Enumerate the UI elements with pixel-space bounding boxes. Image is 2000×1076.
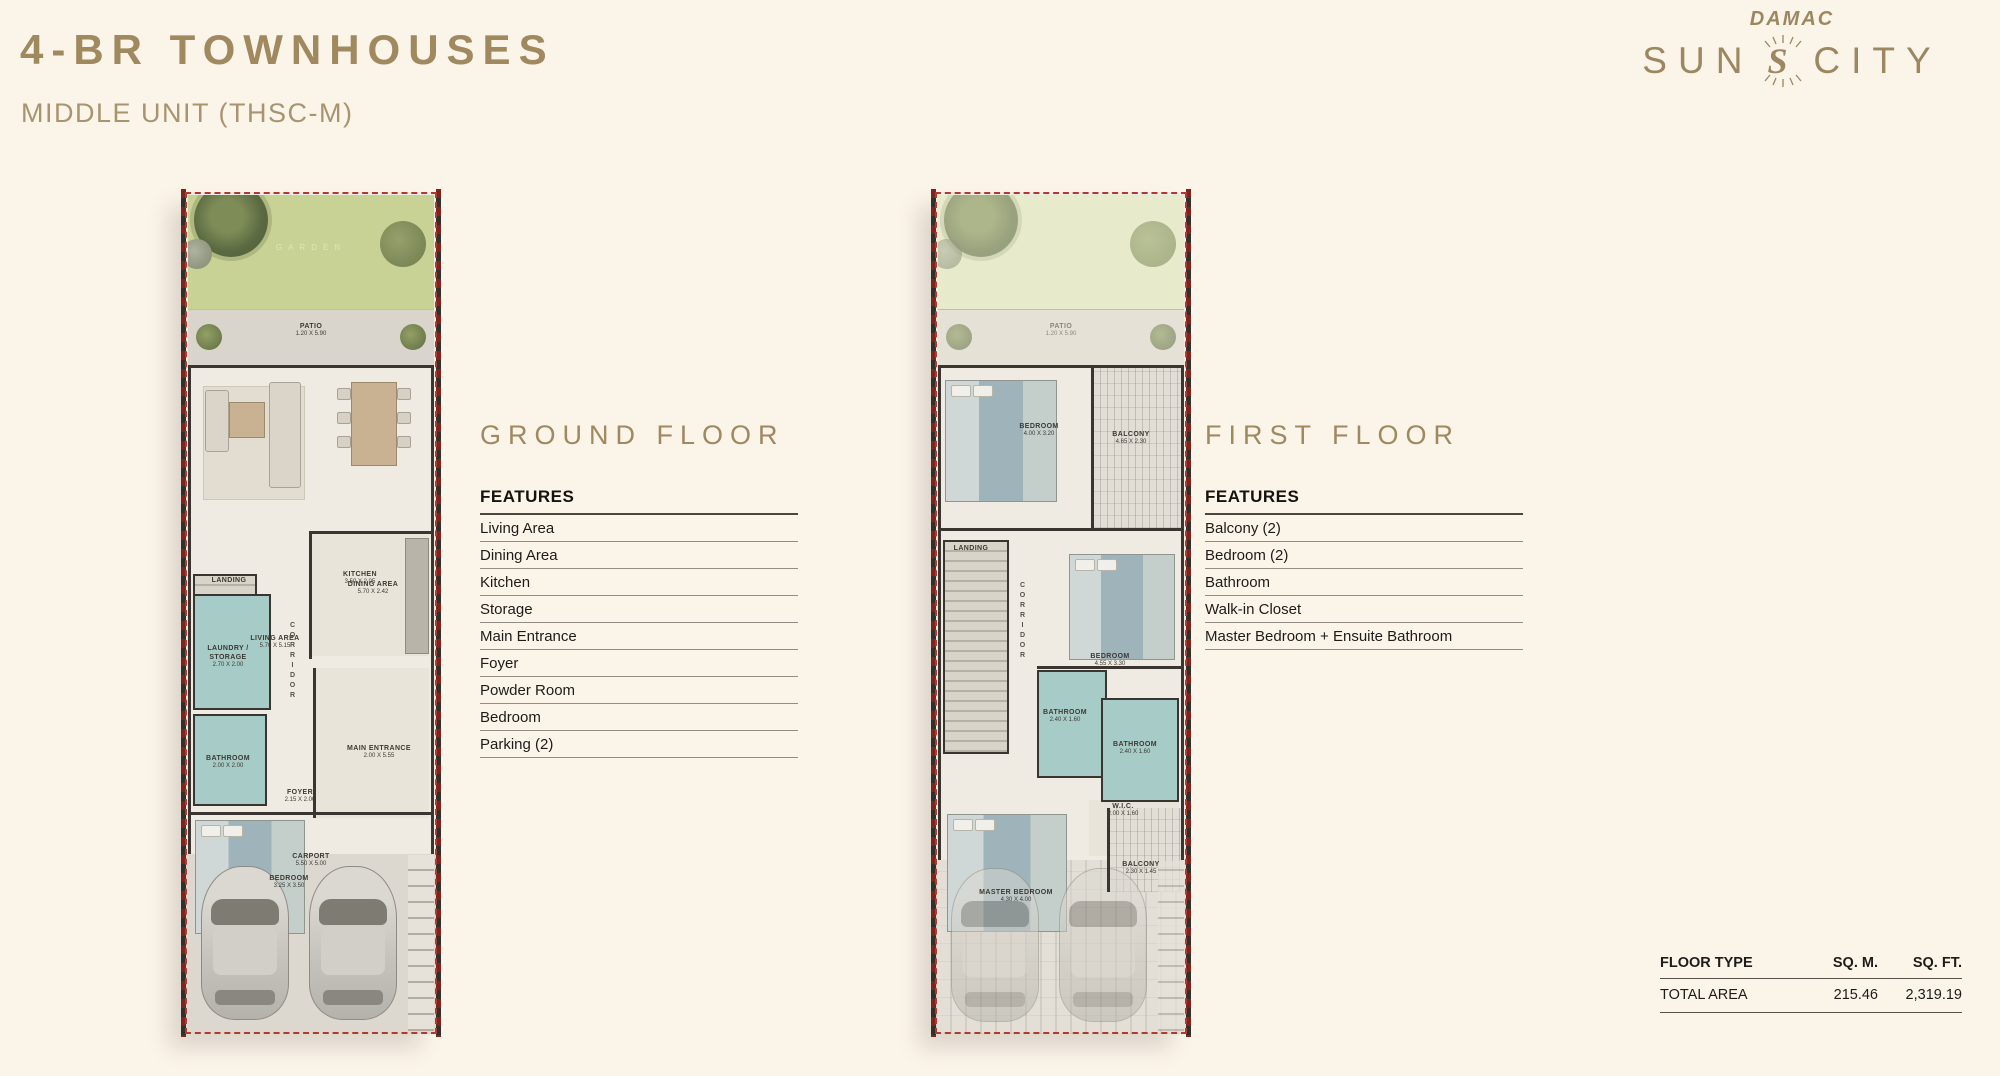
damac-wordmark: DAMAC (1612, 8, 1972, 31)
bed (1069, 554, 1175, 660)
coffee-table (229, 402, 265, 438)
chair (337, 436, 351, 448)
trellis-pattern (1158, 861, 1184, 1031)
col-floor-type: FLOOR TYPE (1660, 955, 1804, 971)
col-sqft: SQ. FT. (1878, 955, 1962, 971)
armchair (205, 390, 229, 452)
landing-label: LANDING (199, 576, 259, 585)
laundry-storage-label: LAUNDRY / STORAGE 2.70 X 2.00 (193, 644, 263, 670)
party-wall-hatch (436, 189, 441, 1037)
party-wall-hatch (1186, 189, 1191, 1037)
chair (337, 388, 351, 400)
bathroom-label: BATHROOM 2.40 X 1.60 (1097, 740, 1173, 757)
feature-item: Living Area (480, 515, 798, 542)
bedroom-label: BEDROOM 4.55 X 3.30 (1065, 652, 1155, 669)
garden-area: GARDEN (188, 195, 434, 309)
ground-floor-section: GROUND FLOOR FEATURES Living Area Dining… (480, 420, 798, 758)
balcony-label: BALCONY 4.65 X 2.30 (1087, 430, 1175, 447)
first-features-list: Balcony (2) Bedroom (2) Bathroom Walk-in… (1205, 515, 1523, 650)
total-area-table: FLOOR TYPE SQ. M. SQ. FT. TOTAL AREA 215… (1660, 955, 1962, 1013)
chair (397, 412, 411, 424)
feature-item: Dining Area (480, 542, 798, 569)
wic-label: W.I.C. 2.00 X 1.60 (1085, 802, 1161, 819)
trellis-pattern (408, 855, 434, 1031)
sofa (269, 382, 301, 488)
patio-label: PATIO 1.20 X 5.90 (261, 322, 361, 339)
corridor-label: CORRIDOR (289, 622, 296, 702)
feature-item: Foyer (480, 650, 798, 677)
bed (945, 380, 1057, 502)
feature-item: Bedroom (480, 704, 798, 731)
stairs (943, 540, 1009, 754)
planter-icon (1150, 324, 1176, 350)
chair (397, 388, 411, 400)
bathroom-label: BATHROOM 2.40 X 1.60 (1027, 708, 1103, 725)
ground-features-title: FEATURES (480, 487, 798, 515)
area-table-header: FLOOR TYPE SQ. M. SQ. FT. (1660, 955, 1962, 979)
col-sqm: SQ. M. (1804, 955, 1878, 971)
car-ghost-icon (1059, 868, 1147, 1022)
dining-table (351, 382, 397, 466)
logo-text-city: CITY (1813, 40, 1941, 82)
carport-label: CARPORT 5.50 X 5.00 (261, 852, 361, 869)
bush-icon (1130, 221, 1176, 267)
ground-floor-building (188, 365, 434, 886)
kitchen-label: KITCHEN 3.50 X 2.05 (315, 570, 405, 587)
first-floor-heading: FIRST FLOOR (1205, 420, 1523, 451)
planter-icon (400, 324, 426, 350)
page-title: 4-BR TOWNHOUSES (20, 26, 555, 74)
balcony-hatch (1093, 368, 1181, 528)
feature-item: Master Bedroom + Ensuite Bathroom (1205, 623, 1523, 650)
foyer-label: FOYER 2.15 X 2.00 (265, 788, 335, 805)
party-wall-hatch (181, 189, 186, 1037)
patio-label: PATIO 1.20 X 5.90 (1011, 322, 1111, 339)
bedroom-label: BEDROOM 4.00 X 3.20 (991, 422, 1087, 439)
feature-item: Storage (480, 596, 798, 623)
first-floor-plan: PATIO 1.20 X 5.90 BEDROOM 4.00 X 3.20 (935, 192, 1187, 1034)
feature-item: Main Entrance (480, 623, 798, 650)
bedroom-label: BEDROOM 3.25 X 3.50 (247, 874, 331, 891)
ground-floor-plan: GARDEN PATIO 1.20 X 5.90 (185, 192, 437, 1034)
balcony-label: BALCONY 2.30 X 1.45 (1103, 860, 1179, 877)
chair (337, 412, 351, 424)
planter-icon (196, 324, 222, 350)
bush-icon (938, 239, 962, 269)
first-features-title: FEATURES (1205, 487, 1523, 515)
total-area-sqm: 215.46 (1804, 987, 1878, 1003)
landing-label: LANDING (941, 544, 1001, 553)
feature-item: Balcony (2) (1205, 515, 1523, 542)
feature-item: Powder Room (480, 677, 798, 704)
master-bedroom-label: MASTER BEDROOM 4.30 X 4.00 (961, 888, 1071, 905)
sun-city-logo: DAMAC SUN S CITY (1612, 8, 1972, 89)
chair (397, 436, 411, 448)
feature-item: Parking (2) (480, 731, 798, 758)
bathroom-label: BATHROOM 2.00 X 2.00 (193, 754, 263, 771)
sun-city-wordmark: SUN S CITY (1612, 33, 1972, 89)
ground-features-list: Living Area Dining Area Kitchen Storage … (480, 515, 798, 758)
corridor-label: CORRIDOR (1019, 582, 1026, 662)
svg-text:S: S (1768, 41, 1799, 81)
feature-item: Walk-in Closet (1205, 596, 1523, 623)
garden-label: GARDEN (188, 243, 434, 252)
logo-text-sun: SUN (1642, 40, 1753, 82)
feature-item: Bathroom (1205, 569, 1523, 596)
ground-floor-heading: GROUND FLOOR (480, 420, 798, 451)
garden-area-faded (938, 195, 1184, 309)
feature-item: Bedroom (2) (1205, 542, 1523, 569)
sunburst-s-icon: S (1755, 33, 1811, 89)
planter-icon (946, 324, 972, 350)
total-area-label: TOTAL AREA (1660, 987, 1804, 1003)
page-subtitle: MIDDLE UNIT (THSC-M) (21, 98, 353, 129)
total-area-sqft: 2,319.19 (1878, 987, 1962, 1003)
first-floor-section: FIRST FLOOR FEATURES Balcony (2) Bedroom… (1205, 420, 1523, 650)
feature-item: Kitchen (480, 569, 798, 596)
area-table-row: TOTAL AREA 215.46 2,319.19 (1660, 979, 1962, 1013)
party-wall-hatch (931, 189, 936, 1037)
main-entrance-label: MAIN ENTRANCE 2.00 X 5.55 (337, 744, 421, 761)
